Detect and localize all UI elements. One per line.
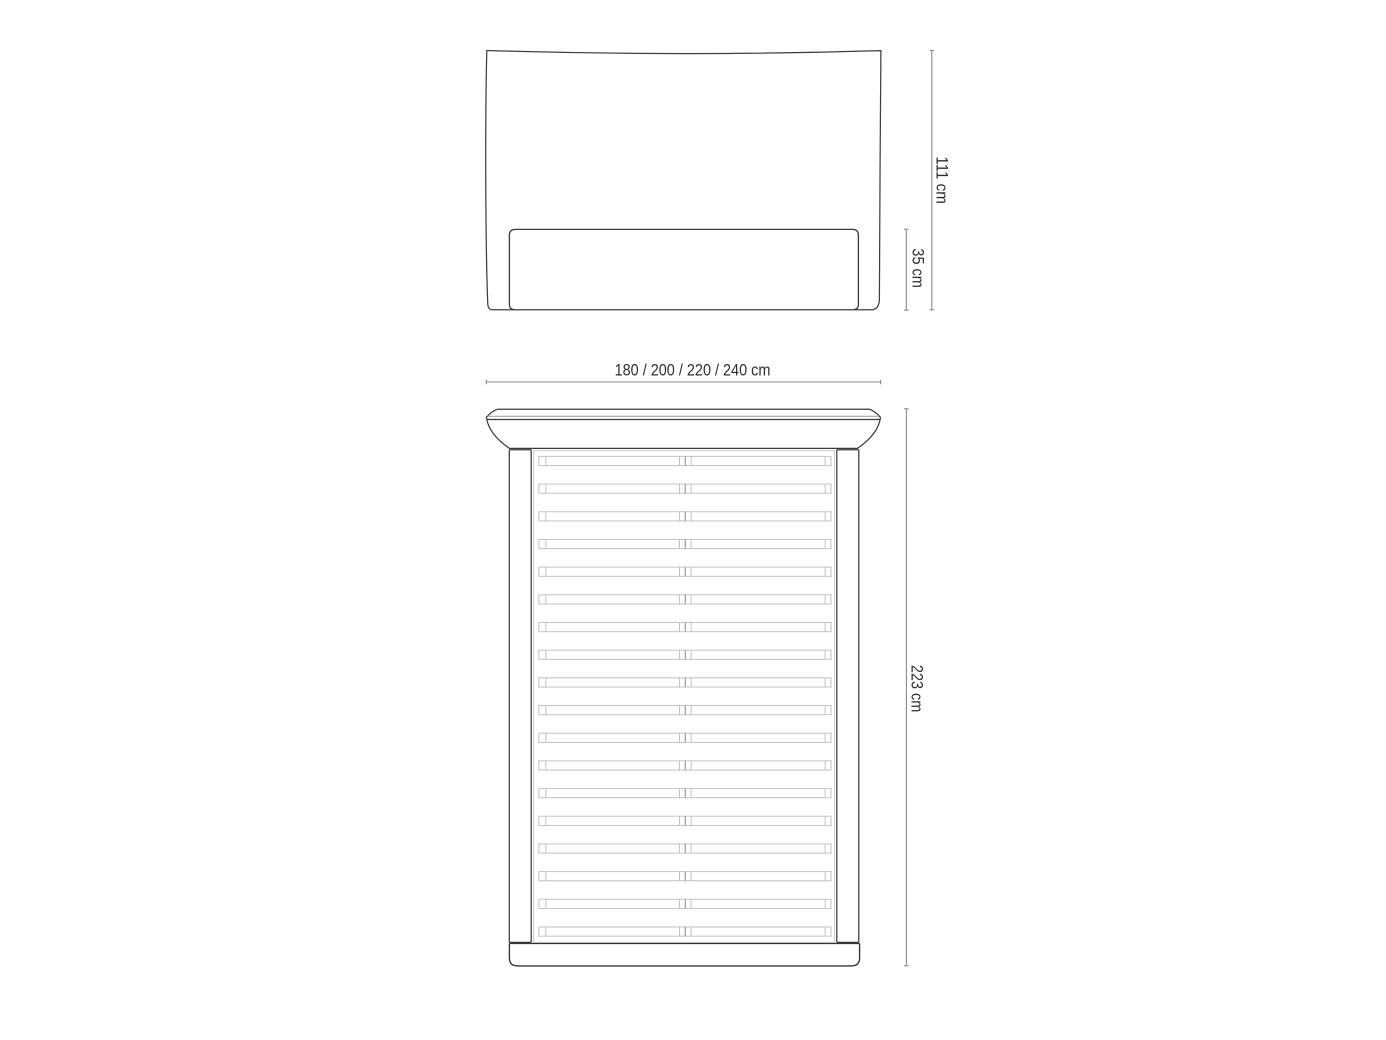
svg-text:35 cm: 35 cm bbox=[909, 248, 928, 287]
svg-text:111 cm: 111 cm bbox=[932, 156, 951, 203]
svg-text:223 cm: 223 cm bbox=[908, 665, 927, 712]
svg-text:180 / 200 / 220 / 240 cm: 180 / 200 / 220 / 240 cm bbox=[615, 360, 771, 379]
